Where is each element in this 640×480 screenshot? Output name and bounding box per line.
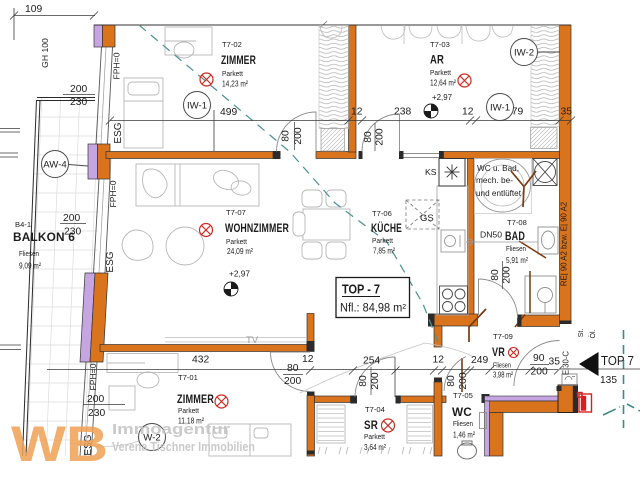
svg-text:12: 12 xyxy=(351,107,363,118)
svg-text:T7-08: T7-08 xyxy=(507,218,527,227)
svg-text:AW-4: AW-4 xyxy=(43,160,67,171)
svg-text:90: 90 xyxy=(533,353,545,364)
svg-text:T7-03: T7-03 xyxy=(430,40,450,49)
svg-text:T7-02: T7-02 xyxy=(222,40,242,49)
svg-text:B4-1: B4-1 xyxy=(15,220,31,229)
svg-text:T7-09: T7-09 xyxy=(493,332,513,341)
svg-text:432: 432 xyxy=(192,355,209,366)
svg-text:TOP 7: TOP 7 xyxy=(601,353,634,368)
svg-text:Immoagentur: Immoagentur xyxy=(112,422,230,438)
svg-text:200: 200 xyxy=(370,372,381,389)
svg-text:T7-07: T7-07 xyxy=(226,208,246,217)
svg-text:238: 238 xyxy=(394,107,411,118)
svg-text:St.: St. xyxy=(578,329,585,338)
svg-text:GS: GS xyxy=(420,213,434,224)
svg-text:WC: WC xyxy=(452,407,472,419)
svg-text:T7-06: T7-06 xyxy=(372,209,392,218)
svg-text:VR: VR xyxy=(492,347,505,359)
svg-text:ZIMMER: ZIMMER xyxy=(221,55,256,67)
svg-text:KS: KS xyxy=(425,167,437,177)
svg-text:35: 35 xyxy=(561,107,573,118)
svg-text:12: 12 xyxy=(302,354,314,365)
svg-text:12: 12 xyxy=(433,355,445,366)
svg-text:Parkett: Parkett xyxy=(178,406,200,415)
svg-text:KÜCHE: KÜCHE xyxy=(371,222,402,235)
svg-text:Fliesen: Fliesen xyxy=(506,244,526,253)
svg-text:200: 200 xyxy=(531,367,548,378)
svg-text:80: 80 xyxy=(281,130,292,142)
svg-text:12: 12 xyxy=(462,107,474,118)
svg-text:230: 230 xyxy=(64,227,81,238)
svg-text:9,09 m²: 9,09 m² xyxy=(19,261,41,271)
svg-text:200: 200 xyxy=(87,394,104,405)
svg-text:TV: TV xyxy=(246,335,259,346)
svg-text:T7-04: T7-04 xyxy=(365,405,385,414)
svg-text:7,85 m²: 7,85 m² xyxy=(373,246,395,256)
svg-text:200: 200 xyxy=(284,376,301,387)
svg-text:WOHNZIMMER: WOHNZIMMER xyxy=(225,223,289,235)
svg-text:80: 80 xyxy=(363,131,374,143)
svg-text:RE| 90 A2 bzw. E| 90 A2: RE| 90 A2 bzw. E| 90 A2 xyxy=(560,202,569,286)
svg-text:WB: WB xyxy=(11,416,108,472)
svg-text:SR: SR xyxy=(364,420,378,432)
svg-text:80: 80 xyxy=(490,269,501,281)
svg-text:Parkett: Parkett xyxy=(372,236,394,245)
svg-text:GH 100: GH 100 xyxy=(40,38,50,68)
svg-text:FPH=0: FPH=0 xyxy=(108,180,118,207)
svg-text:80: 80 xyxy=(287,363,299,374)
svg-text:IW-2: IW-2 xyxy=(514,48,534,59)
svg-text:254: 254 xyxy=(363,356,380,367)
svg-text:und entlüftet: und entlüftet xyxy=(476,189,522,198)
svg-text:FPH=0: FPH=0 xyxy=(112,52,122,79)
svg-text:+2,97: +2,97 xyxy=(229,269,250,279)
svg-text:T7-05: T7-05 xyxy=(453,391,473,400)
svg-text:ZIMMER: ZIMMER xyxy=(177,394,214,406)
svg-text:109: 109 xyxy=(25,4,42,15)
svg-text:24,09 m²: 24,09 m² xyxy=(227,246,253,256)
svg-text:T7-01: T7-01 xyxy=(178,373,198,382)
svg-text:Fliesen: Fliesen xyxy=(19,249,39,258)
svg-text:Parkett: Parkett xyxy=(430,68,452,77)
svg-text:12,64 m²: 12,64 m² xyxy=(430,78,456,88)
svg-text:AR: AR xyxy=(430,55,444,67)
svg-text:3,98 m²: 3,98 m² xyxy=(493,370,513,380)
svg-text:IW-1: IW-1 xyxy=(490,103,510,114)
svg-text:ESG: ESG xyxy=(113,122,124,143)
svg-text:230: 230 xyxy=(70,97,87,108)
svg-text:200: 200 xyxy=(63,213,80,224)
svg-text:mech. be-: mech. be- xyxy=(476,176,513,185)
svg-text:E|30-C: E|30-C xyxy=(562,351,571,375)
svg-text:200: 200 xyxy=(375,128,386,145)
svg-text:Verena Tischner Immobilien: Verena Tischner Immobilien xyxy=(112,439,255,454)
svg-text:+2,97: +2,97 xyxy=(432,92,452,102)
svg-text:Parkett: Parkett xyxy=(364,432,386,441)
svg-text:BAD: BAD xyxy=(505,231,525,243)
svg-text:3,64 m²: 3,64 m² xyxy=(364,442,386,452)
svg-text:Fliesen: Fliesen xyxy=(493,361,511,370)
svg-text:FPH=0: FPH=0 xyxy=(88,363,98,390)
svg-text:249: 249 xyxy=(471,355,488,366)
svg-text:14,23 m²: 14,23 m² xyxy=(222,79,248,89)
svg-text:1,46 m²: 1,46 m² xyxy=(453,430,475,440)
svg-text:Fliesen: Fliesen xyxy=(453,419,473,428)
svg-text:Parkett: Parkett xyxy=(226,237,248,246)
svg-text:IW-1: IW-1 xyxy=(187,101,207,112)
svg-text:WC u. Bad,: WC u. Bad, xyxy=(477,164,519,173)
svg-text:Nfl.: 84,98 m²: Nfl.: 84,98 m² xyxy=(340,303,406,315)
svg-text:200: 200 xyxy=(458,372,469,389)
svg-text:135: 135 xyxy=(600,375,617,386)
svg-text:Öl.: Öl. xyxy=(589,329,597,338)
svg-text:80: 80 xyxy=(358,375,369,387)
svg-text:DN50: DN50 xyxy=(480,230,502,240)
svg-text:80: 80 xyxy=(446,375,457,387)
svg-text:TOP - 7: TOP - 7 xyxy=(342,283,380,297)
svg-text:5,91 m²: 5,91 m² xyxy=(506,255,528,265)
svg-text:ESG: ESG xyxy=(105,251,116,272)
svg-text:35: 35 xyxy=(549,357,561,368)
svg-text:Parkett: Parkett xyxy=(222,69,244,78)
svg-text:200: 200 xyxy=(502,266,513,283)
svg-text:499: 499 xyxy=(220,107,237,118)
svg-text:200: 200 xyxy=(70,84,87,95)
